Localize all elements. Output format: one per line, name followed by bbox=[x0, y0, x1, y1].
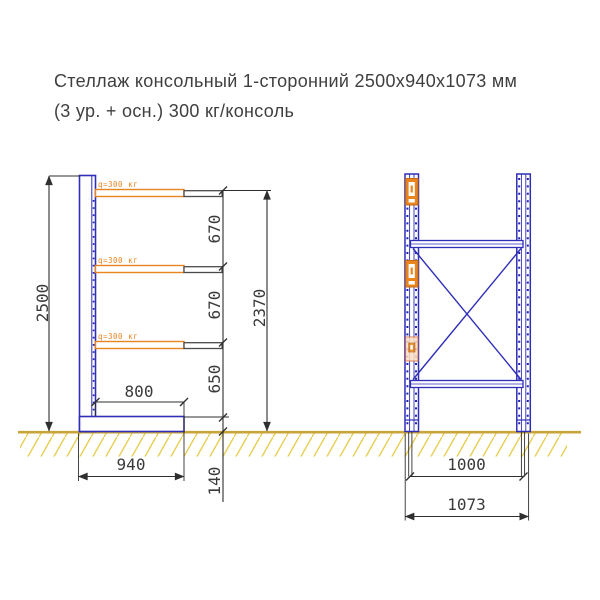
dim-base-depth-value: 940 bbox=[117, 455, 146, 474]
front-view-left-upright bbox=[405, 174, 419, 432]
arm-level-3-tip bbox=[184, 343, 222, 349]
arm-bracket-3 bbox=[406, 337, 418, 361]
dim-total-height: 2500 bbox=[33, 176, 80, 431]
arm-level-1-cantilever bbox=[96, 190, 185, 197]
arm-level-3-load-label: q=300 кг bbox=[98, 332, 138, 341]
side-view-base bbox=[80, 417, 185, 432]
ground bbox=[18, 432, 581, 456]
dim-base-height-value: 140 bbox=[205, 467, 224, 496]
arm-bracket-2 bbox=[406, 261, 418, 288]
cantilever-rack-technical-drawing: q=300 кг q=300 кг q=300 кг 2500 bbox=[0, 0, 600, 600]
arm-level-2-tip bbox=[184, 267, 222, 273]
arm-level-2-load-label: q=300 кг bbox=[98, 256, 138, 265]
dim-axis-spacing: 1000 bbox=[406, 455, 528, 481]
dim-arms-height-value: 2370 bbox=[250, 289, 269, 328]
arm-level-3-cantilever bbox=[96, 342, 185, 349]
arm-level-1-tip bbox=[184, 191, 222, 197]
arm-level-2-cantilever bbox=[96, 266, 185, 273]
ground-hatch bbox=[20, 434, 567, 457]
dim-overall-width-value: 1073 bbox=[447, 495, 486, 514]
front-view-right-upright bbox=[517, 174, 531, 432]
dim-arms-height: 2370 bbox=[222, 191, 271, 432]
dim-spacing-top-value: 670 bbox=[205, 215, 224, 244]
arm-level-1: q=300 кг bbox=[96, 180, 223, 197]
front-view: 1000 1073 bbox=[405, 174, 530, 521]
dim-total-height-value: 2500 bbox=[33, 284, 52, 323]
dim-axis-spacing-value: 1000 bbox=[447, 455, 486, 474]
arm-bracket-1 bbox=[406, 179, 418, 206]
dim-spacing-bottom-value: 650 bbox=[205, 365, 224, 394]
drawing-page: Стеллаж консольный 1-сторонний 2500х940х… bbox=[0, 0, 600, 600]
arm-level-1-load-label: q=300 кг bbox=[98, 180, 138, 189]
dim-arm-length-value: 800 bbox=[125, 382, 154, 401]
arm-level-3: q=300 кг bbox=[96, 332, 223, 349]
side-view-column bbox=[80, 176, 96, 432]
arm-level-2: q=300 кг bbox=[96, 256, 223, 273]
dim-spacing-mid-value: 670 bbox=[205, 291, 224, 320]
diagonal-x-bracing bbox=[413, 249, 521, 380]
